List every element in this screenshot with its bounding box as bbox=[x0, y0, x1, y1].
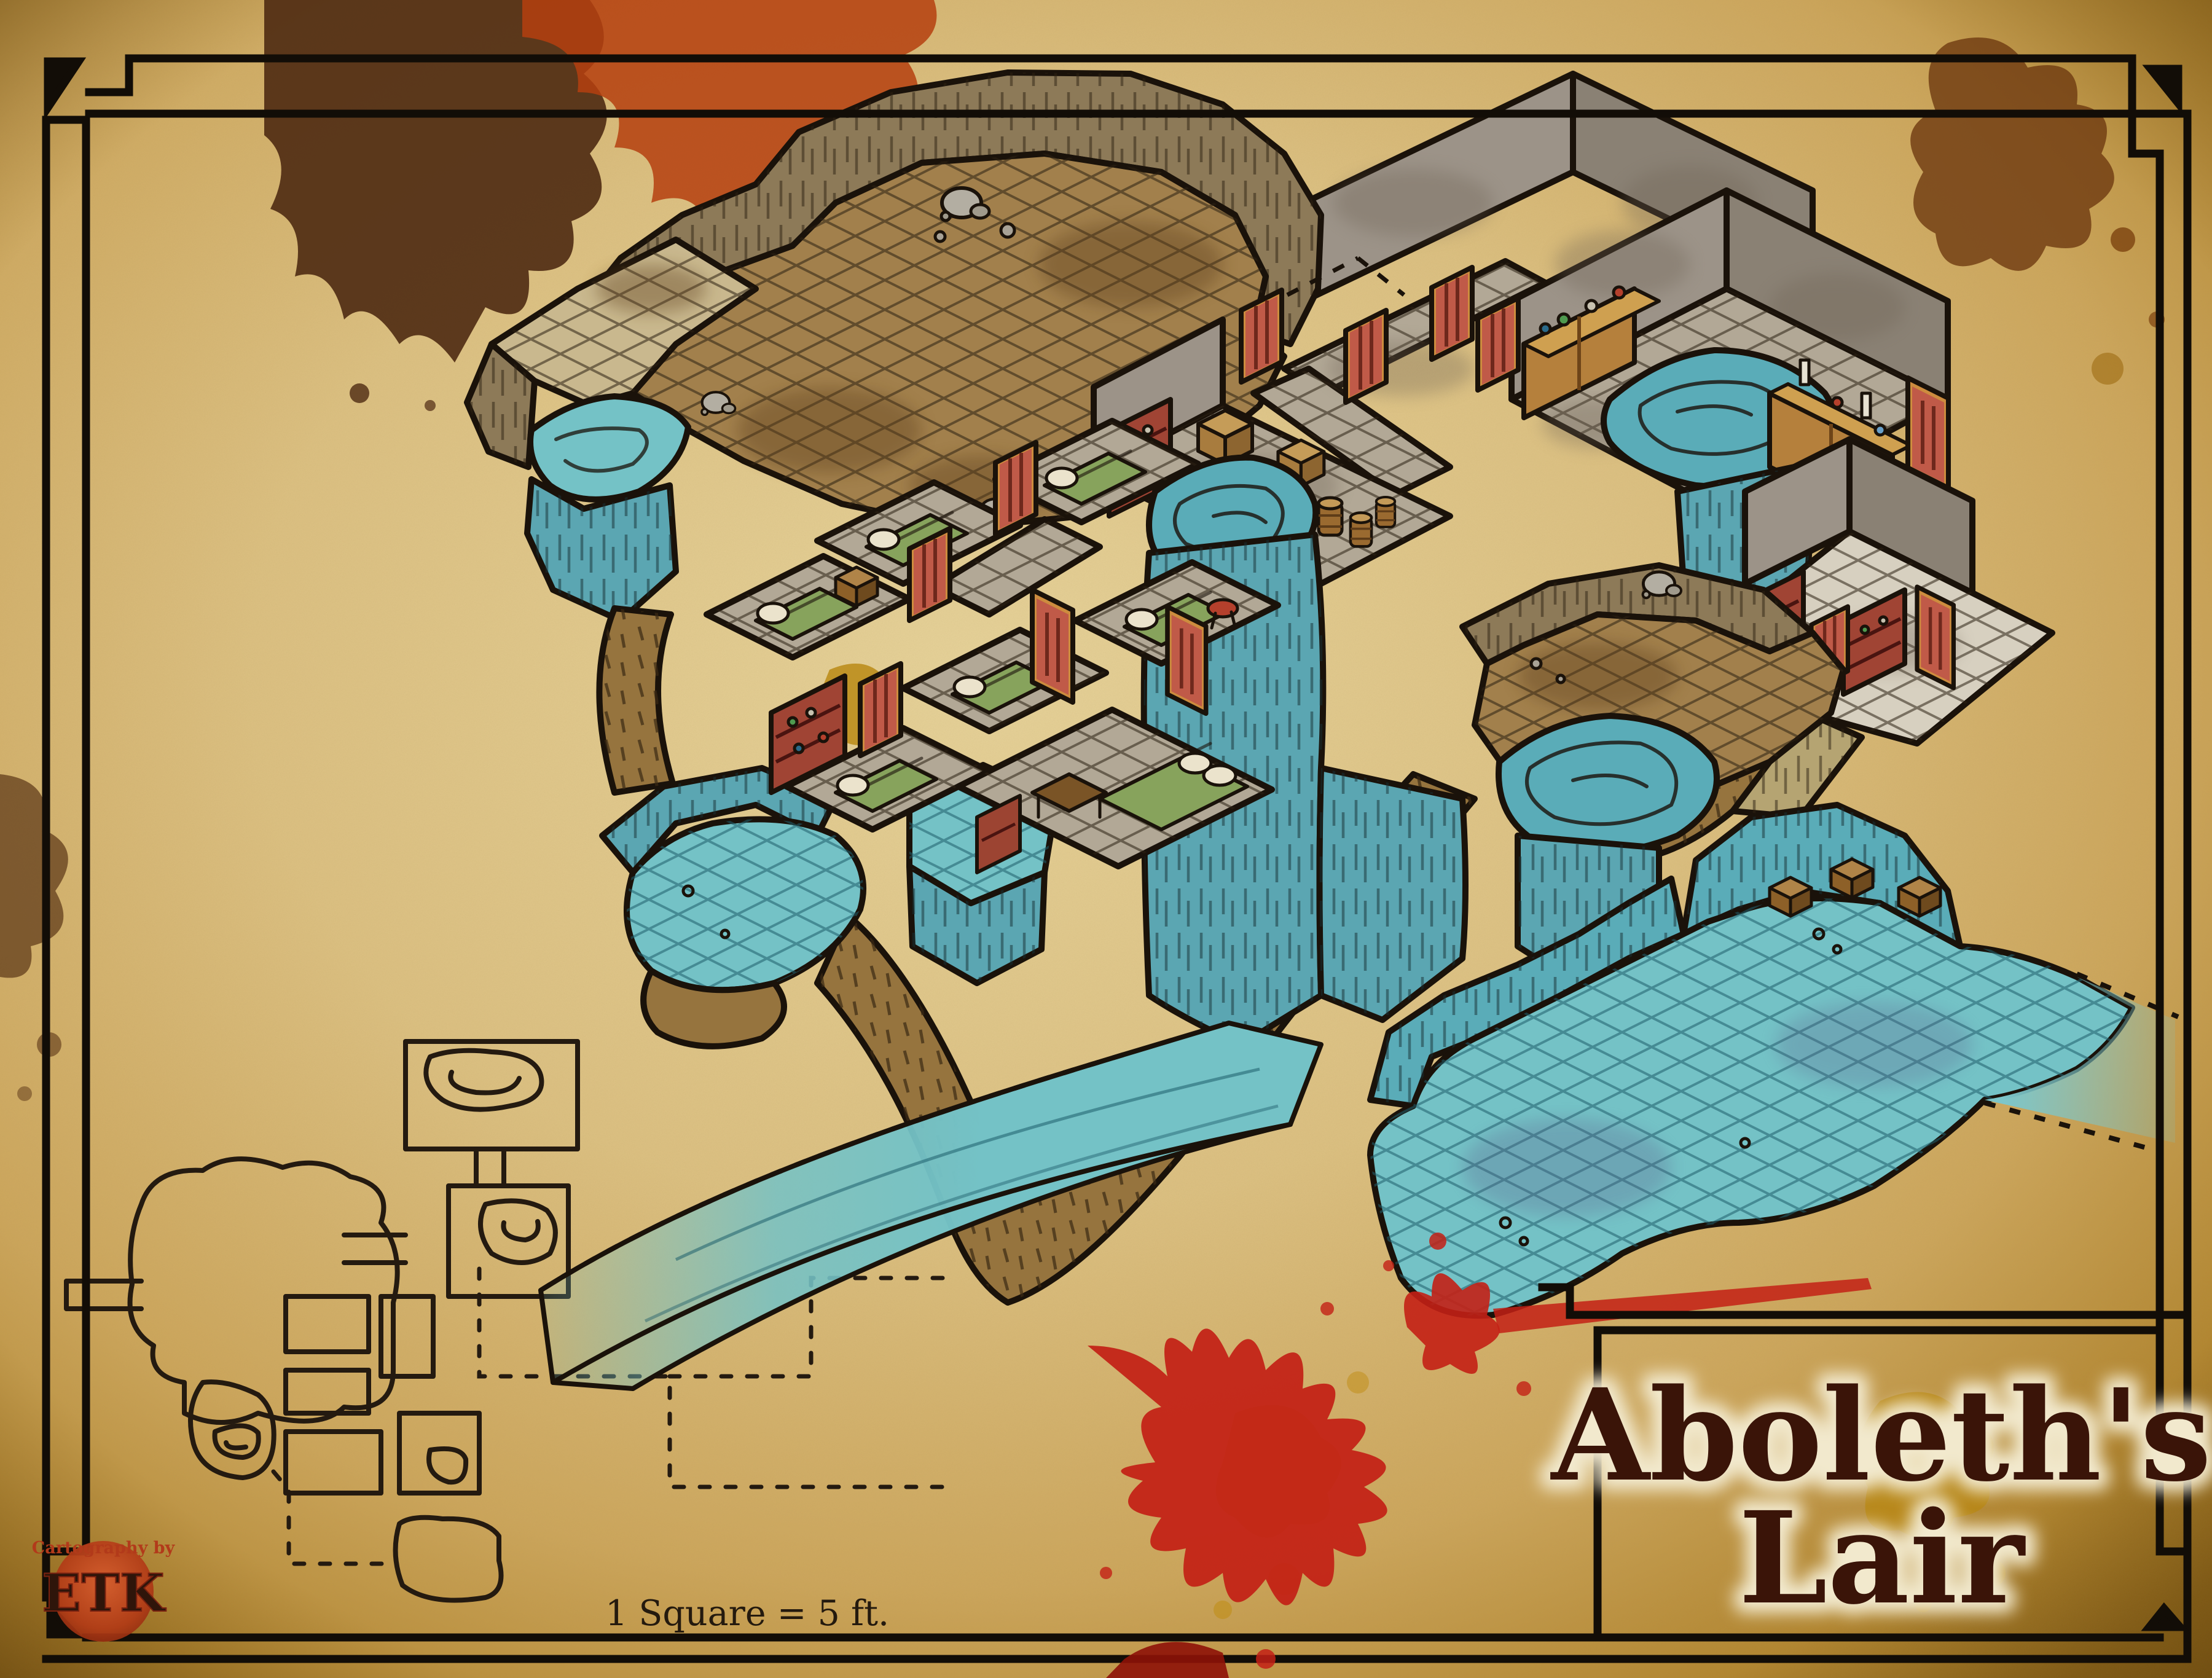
dungeon-map-canvas: Aboleth's Aboleth's Lair Lair 1 Square =… bbox=[0, 0, 2212, 1678]
platform-pool bbox=[1499, 716, 1717, 853]
scale-note: 1 Square = 5 ft. bbox=[605, 1593, 889, 1634]
logo-monogram: ETK bbox=[42, 1562, 167, 1623]
map-artwork: Aboleth's Aboleth's Lair Lair 1 Square =… bbox=[0, 0, 2212, 1678]
logo-credit-prefix: Cartography by bbox=[32, 1539, 176, 1558]
map-title-line2: Lair bbox=[1738, 1484, 2026, 1633]
